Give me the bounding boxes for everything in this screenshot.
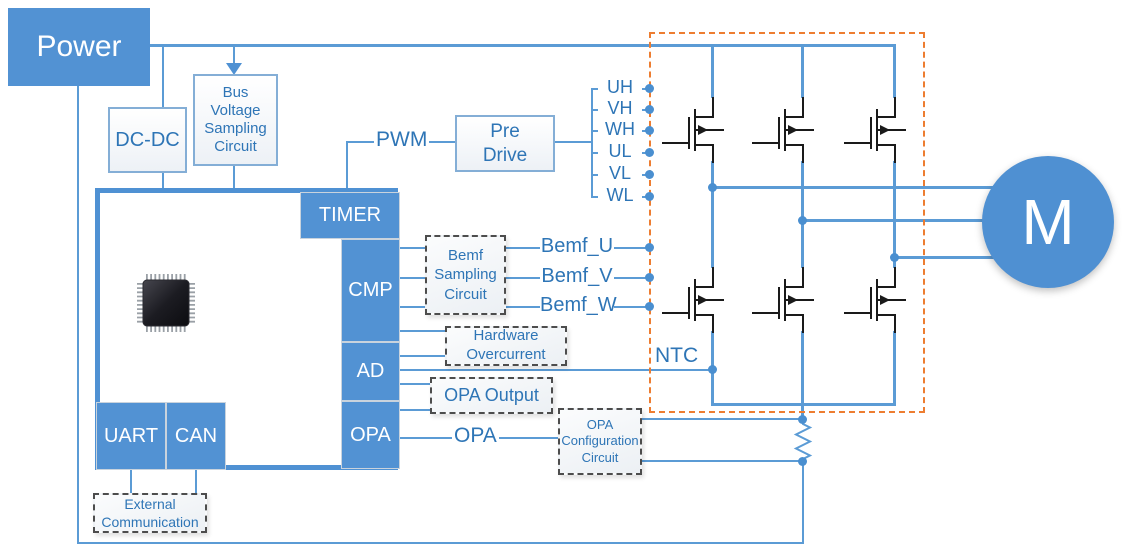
- wire: [398, 247, 425, 249]
- motor-label: M: [1021, 185, 1074, 259]
- timer-block: TIMER: [300, 192, 400, 239]
- wire: [398, 355, 445, 357]
- opa-configuration-box: OPA Configuration Circuit: [558, 408, 642, 475]
- mosfet-icon: [752, 97, 814, 163]
- ad-label: AD: [357, 360, 385, 383]
- wire: [195, 468, 197, 493]
- wire: [642, 460, 803, 462]
- junction-dot: [645, 302, 654, 311]
- pre-drive-label: Pre Drive: [473, 120, 537, 168]
- diagram-canvas: Power DC-DC Bus Voltage Sampling Circuit…: [0, 0, 1134, 550]
- junction-dot: [708, 365, 717, 374]
- opa-output-label: OPA Output: [444, 385, 539, 406]
- wire: [802, 463, 804, 543]
- junction-dot: [645, 192, 654, 201]
- wire: [162, 46, 164, 107]
- uart-label: UART: [104, 425, 158, 448]
- junction-dot: [645, 243, 654, 252]
- external-communication-label: External Communication: [95, 495, 205, 531]
- bemf-signal-w: Bemf_W: [540, 295, 614, 316]
- opa-block: OPA: [341, 401, 400, 469]
- dcdc-box: DC-DC: [108, 107, 187, 173]
- wire: [233, 46, 235, 64]
- junction-dot: [890, 253, 899, 262]
- mosfet-icon: [752, 267, 814, 333]
- wire: [398, 383, 430, 385]
- power-box: Power: [8, 8, 150, 86]
- bus-voltage-sampling-box: Bus Voltage Sampling Circuit: [193, 74, 278, 166]
- can-label: CAN: [175, 425, 217, 448]
- opa-output-box: OPA Output: [430, 377, 553, 414]
- can-block: CAN: [166, 402, 226, 470]
- wire: [398, 409, 430, 411]
- mcu-chip-icon: [130, 267, 202, 339]
- mosfet-icon: [662, 97, 724, 163]
- pwm-signal-label: PWM: [374, 129, 429, 151]
- junction-dot: [645, 105, 654, 114]
- gate-signal-wl: WL: [598, 186, 642, 205]
- junction-dot: [798, 415, 807, 424]
- junction-dot: [645, 170, 654, 179]
- wire: [77, 86, 79, 543]
- cmp-block: CMP: [341, 239, 400, 342]
- ad-block: AD: [341, 342, 400, 401]
- ntc-signal-label: NTC: [653, 345, 700, 367]
- opa-block-label: OPA: [350, 424, 391, 447]
- hardware-overcurrent-label: Hardware Overcurrent: [447, 327, 565, 365]
- wire: [398, 330, 445, 332]
- wire: [642, 418, 803, 420]
- power-label: Power: [36, 30, 121, 64]
- opa-configuration-label: OPA Configuration Circuit: [560, 417, 640, 466]
- cmp-label: CMP: [348, 279, 392, 302]
- motor-circle: M: [982, 156, 1114, 288]
- timer-label: TIMER: [319, 204, 381, 227]
- junction-dot: [645, 126, 654, 135]
- hardware-overcurrent-box: Hardware Overcurrent: [445, 326, 567, 366]
- pre-drive-box: Pre Drive: [455, 115, 555, 172]
- wire: [591, 88, 593, 198]
- junction-dot: [798, 216, 807, 225]
- gate-signal-vl: VL: [598, 164, 642, 183]
- mosfet-icon: [662, 267, 724, 333]
- gate-signal-wh: WH: [598, 120, 642, 139]
- dcdc-label: DC-DC: [115, 129, 179, 152]
- gate-signal-ul: UL: [598, 142, 642, 161]
- wire: [398, 277, 425, 279]
- bemf-signal-u: Bemf_U: [540, 236, 614, 257]
- wire: [130, 468, 132, 493]
- junction-dot: [645, 148, 654, 157]
- junction-dot: [708, 183, 717, 192]
- junction-dot: [645, 84, 654, 93]
- junction-dot: [645, 273, 654, 282]
- bus-voltage-sampling-label: Bus Voltage Sampling Circuit: [197, 84, 274, 156]
- wire: [346, 141, 348, 193]
- mosfet-icon: [844, 97, 906, 163]
- wire: [398, 306, 425, 308]
- junction-dot: [798, 457, 807, 466]
- gate-signal-uh: UH: [598, 78, 642, 97]
- bemf-signal-v: Bemf_V: [540, 266, 614, 287]
- external-communication-box: External Communication: [93, 493, 207, 533]
- bemf-sampling-label: Bemf Sampling Circuit: [427, 246, 504, 305]
- opa-signal-label: OPA: [452, 425, 499, 447]
- gate-signal-vh: VH: [598, 99, 642, 118]
- bemf-sampling-box: Bemf Sampling Circuit: [425, 235, 506, 315]
- wire: [555, 141, 592, 143]
- uart-block: UART: [96, 402, 166, 470]
- wire: [77, 542, 804, 544]
- mosfet-icon: [844, 267, 906, 333]
